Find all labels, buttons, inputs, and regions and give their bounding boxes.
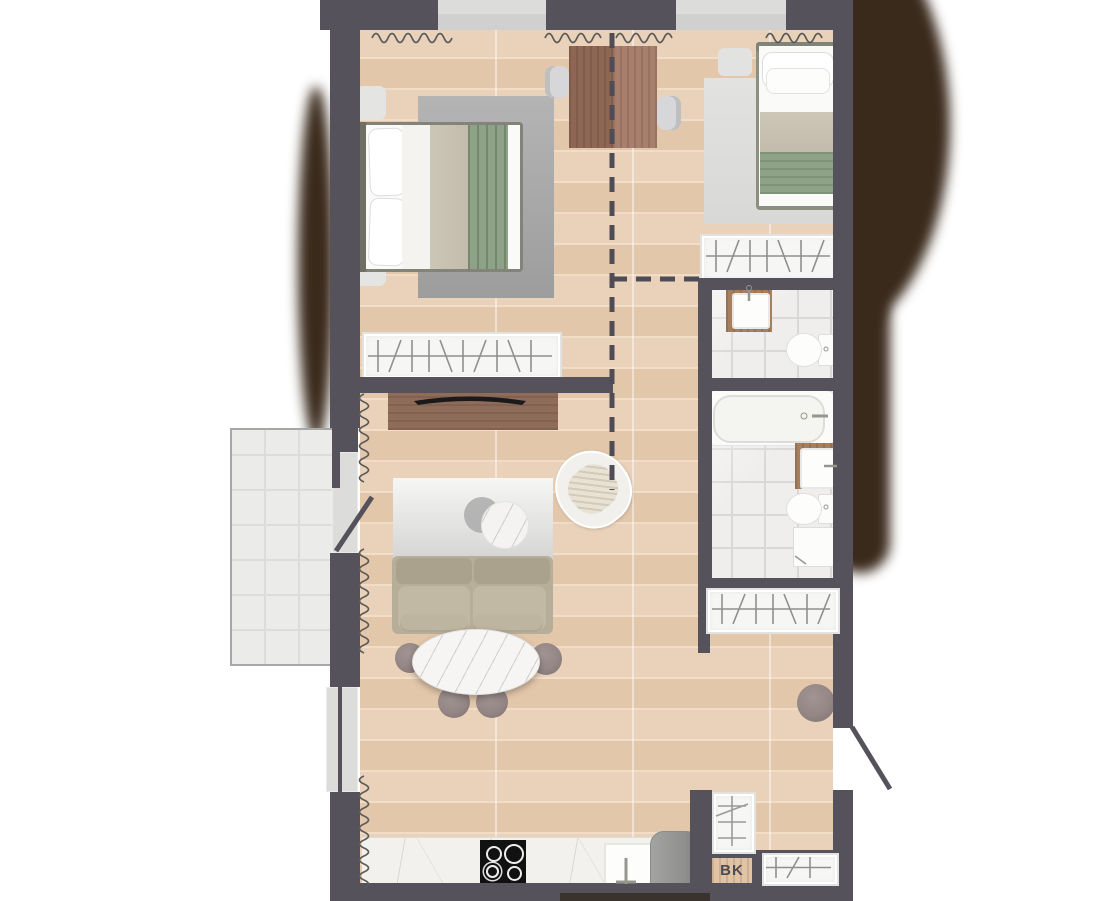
window — [326, 687, 358, 792]
burner — [507, 866, 522, 881]
bed-duvet — [402, 125, 430, 269]
washbasin — [732, 293, 770, 329]
bed-blanket-beige — [430, 125, 468, 269]
coffee-table — [412, 629, 540, 695]
wall-left — [330, 553, 360, 687]
dining-table-right — [613, 46, 657, 148]
nightstand — [356, 86, 386, 120]
bed-throw-green — [760, 152, 834, 194]
window-mullion — [338, 687, 342, 792]
floor-plan-canvas: BK — [0, 0, 1116, 901]
bed-blanket-beige — [760, 112, 834, 152]
bk-label-text: BK — [720, 862, 744, 879]
wall-left — [330, 28, 360, 428]
storage-closet-bk: BK — [712, 858, 752, 883]
bed-pillow — [368, 197, 406, 266]
double-bed — [357, 122, 523, 272]
wardrobe — [700, 234, 840, 282]
sofa-back-cushion — [396, 558, 472, 584]
shelf-unit — [712, 792, 756, 854]
burner — [504, 844, 524, 864]
dining-table-left — [569, 46, 613, 148]
shadow-blob-left — [298, 86, 334, 442]
side-table — [481, 501, 529, 549]
burner — [486, 865, 499, 878]
kitchen-sink — [604, 843, 652, 887]
wardrobe — [362, 332, 562, 380]
balcony-floor — [230, 428, 336, 666]
nightstand — [718, 48, 752, 76]
washbasin — [800, 448, 836, 489]
bed-pillow — [766, 68, 830, 94]
wall-interior — [698, 278, 853, 290]
burner — [486, 846, 502, 862]
washing-machine — [793, 527, 837, 567]
wall-shadow — [560, 893, 710, 901]
window — [438, 0, 546, 30]
wall-interior — [358, 377, 613, 393]
window — [676, 0, 786, 30]
bed-pillow — [368, 127, 406, 196]
bed-throw-green — [468, 125, 508, 269]
wall-interior — [698, 378, 833, 391]
wall-stub — [332, 428, 358, 452]
single-bed — [756, 42, 838, 210]
armchair-cushion — [560, 456, 626, 522]
wall-interior — [698, 578, 835, 588]
round-pouf — [797, 684, 835, 722]
wardrobe — [706, 588, 840, 634]
dining-chair — [657, 96, 681, 130]
toilet-bowl — [786, 493, 822, 525]
entry-door-swing-line — [852, 727, 890, 789]
sofa-back-cushion — [474, 558, 550, 584]
bathtub-basin — [713, 395, 825, 443]
dining-chair — [545, 66, 569, 98]
sofa — [392, 556, 553, 634]
toilet-bowl — [786, 333, 822, 367]
wall-interior — [698, 280, 712, 580]
tv-sideboard — [388, 392, 558, 430]
cooktop — [480, 840, 526, 884]
wardrobe — [762, 853, 839, 886]
wall-stub — [332, 450, 340, 488]
